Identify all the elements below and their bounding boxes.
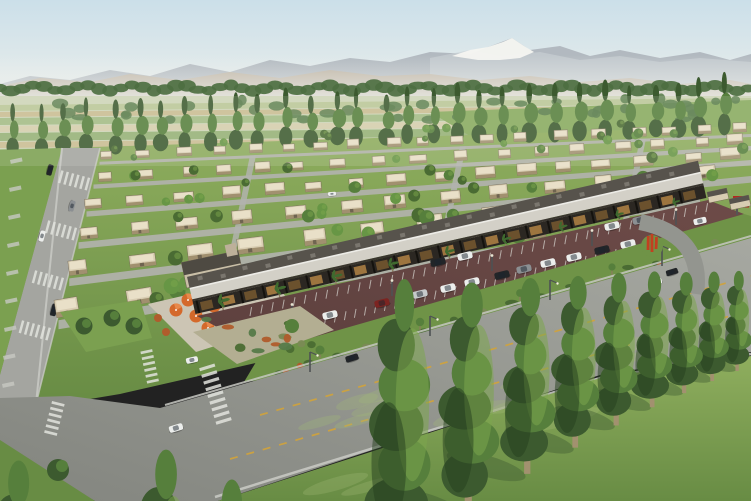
desert-shrub (284, 334, 291, 343)
house (341, 199, 363, 214)
house (440, 190, 461, 204)
parking-light (591, 229, 594, 232)
yard-tree-highlight (193, 166, 197, 170)
yard-tree-highlight (426, 212, 433, 219)
median-tree (316, 346, 325, 355)
yard-tree-highlight (711, 171, 716, 176)
street-light-pole (429, 316, 431, 336)
street-light-pole (309, 352, 311, 372)
monument-sculpture (651, 234, 654, 252)
tree-foliage (734, 271, 744, 291)
island-tree-highlight (82, 319, 91, 328)
desert-shrub (235, 344, 246, 352)
yard-tree-highlight (177, 213, 182, 218)
desert-shrub (262, 337, 272, 343)
tree-foliage (722, 72, 727, 94)
house (386, 173, 406, 186)
house (265, 182, 285, 195)
house-door (553, 189, 557, 192)
yard-tree-highlight (156, 294, 162, 300)
yard-tree-highlight (452, 210, 458, 216)
tree-foliage (569, 276, 586, 310)
tree-shade (505, 368, 532, 457)
house-door (184, 226, 188, 229)
median-bush (711, 239, 719, 244)
house-roof (266, 183, 283, 190)
house-roof (477, 167, 494, 174)
yard-tree-highlight (413, 191, 418, 196)
house (131, 221, 149, 235)
tree-shade (443, 388, 474, 493)
house (489, 184, 509, 199)
house (305, 182, 322, 192)
street-light (556, 282, 558, 284)
house-door (248, 248, 253, 252)
house (126, 195, 144, 206)
yard-tree-highlight (321, 210, 326, 215)
house-roof (490, 185, 506, 194)
desert-shrub (222, 325, 234, 330)
parking-light (675, 208, 678, 211)
desert-shrub (297, 340, 305, 347)
yard-tree-highlight (461, 177, 465, 181)
median-tree (608, 263, 615, 270)
parking-light (491, 254, 494, 257)
yard-tree-highlight (174, 252, 181, 259)
tree-foliage (648, 271, 661, 298)
house-roof (217, 165, 229, 171)
house-door (393, 204, 397, 208)
tree-foliage (696, 77, 701, 98)
median-tree (416, 318, 424, 326)
orange-shrub (154, 314, 162, 322)
parking-light-pole (491, 256, 493, 271)
island-tree-highlight (110, 311, 119, 320)
house-roof (99, 173, 110, 178)
tree-foliage (611, 273, 626, 303)
tree-shade (725, 317, 740, 363)
yard-tree-highlight (429, 166, 434, 171)
parking-light-pole (675, 210, 677, 225)
tree-foliage (395, 279, 415, 332)
tree-foliage (680, 272, 693, 296)
median-bush (622, 265, 634, 270)
desert-shrub (201, 317, 211, 322)
yard-tree-highlight (165, 199, 169, 203)
desert-shrub (249, 329, 257, 337)
scene-canvas (0, 0, 751, 501)
house (303, 228, 326, 246)
house (222, 185, 241, 198)
house-door (702, 174, 706, 177)
street-light-pole (549, 280, 551, 300)
house-roof (139, 170, 152, 176)
monument-sculpture (655, 237, 658, 249)
tree-shade (555, 355, 580, 433)
umbrella-pole (195, 315, 197, 317)
house-door (76, 270, 79, 274)
street-light (316, 354, 318, 356)
island-tree (285, 319, 299, 333)
house (475, 166, 496, 179)
house (84, 198, 101, 209)
crosswalk-bar (203, 377, 219, 385)
tree-foliage (155, 450, 177, 500)
house (68, 259, 88, 276)
parking-light-pole (591, 231, 593, 246)
street-light (668, 248, 670, 250)
street-light (436, 318, 438, 320)
yard-tree-highlight (531, 184, 536, 189)
monument-sculpture (647, 236, 650, 250)
tree-shade (669, 328, 687, 383)
tree-foliage (521, 278, 540, 316)
verge-tree-highlight (56, 460, 68, 472)
yard-tree-highlight (199, 194, 204, 199)
house-door (496, 194, 499, 198)
desert-shrub (278, 342, 292, 350)
house-door (140, 263, 145, 267)
yard-tree-highlight (307, 211, 313, 217)
parking-light (291, 303, 294, 306)
tree-shade (699, 322, 715, 372)
house-door (313, 240, 317, 245)
house-door (294, 214, 298, 218)
architectural-rendering (0, 0, 751, 501)
yard-tree-highlight (245, 179, 249, 183)
yard-tree-highlight (135, 172, 140, 177)
yard-tree-highlight (171, 280, 178, 287)
umbrella-pole (187, 299, 189, 301)
yard-tree-highlight (322, 204, 327, 209)
house (80, 227, 98, 240)
island-tree-highlight (132, 319, 141, 328)
house-roof (224, 186, 240, 193)
tree-shade (598, 343, 620, 413)
house-door (87, 235, 90, 238)
yard-tree-highlight (216, 211, 222, 217)
umbrella-pole (175, 309, 177, 311)
parking-light (391, 279, 394, 282)
tree-foliage (461, 283, 483, 328)
yard-tree-highlight (367, 228, 373, 234)
yard-tree-highlight (355, 183, 360, 188)
yard-tree-highlight (336, 225, 341, 230)
yard-tree-highlight (188, 196, 192, 200)
tree-foliage (708, 271, 719, 292)
depth-haze (0, 96, 751, 166)
house-door (240, 219, 244, 223)
house-door (350, 209, 354, 213)
orange-shrub (162, 328, 170, 336)
desert-shrub (307, 341, 315, 348)
tree-shade (635, 334, 655, 396)
yard-tree-highlight (448, 171, 453, 176)
house (98, 172, 111, 182)
house (237, 236, 265, 254)
house (231, 209, 252, 224)
parking-light-pole (391, 281, 393, 296)
yard-tree-highlight (473, 184, 478, 189)
desert-shrub (251, 348, 264, 353)
yard-tree-highlight (395, 194, 400, 199)
house-door (449, 199, 452, 202)
house-door (138, 230, 141, 233)
